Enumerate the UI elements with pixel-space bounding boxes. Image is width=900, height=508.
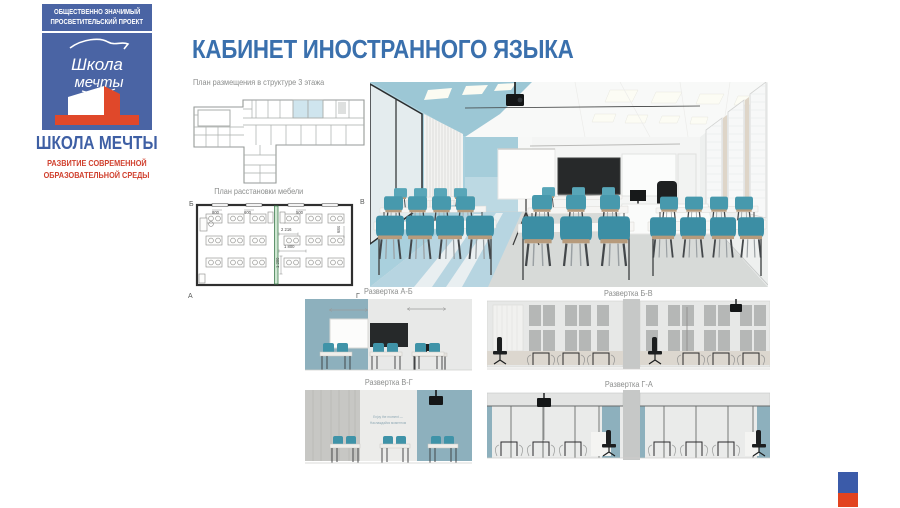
- highlighted-room-1: [293, 100, 308, 118]
- corner-label-tl: Б: [189, 201, 194, 208]
- folding-partition: [275, 206, 279, 284]
- svg-text:800: 800: [212, 210, 220, 215]
- corner-label-tr: В: [360, 199, 365, 206]
- corner-mark-blue: [838, 472, 858, 493]
- scribble-icon: [70, 39, 128, 49]
- page-title: КАБИНЕТ ИНОСТРАННОГО ЯЗЫКА: [192, 34, 636, 65]
- screen: [330, 319, 368, 348]
- logo-tagline: РАЗВИТИЕ СОВРЕМЕННОЙ ОБРАЗОВАТЕЛЬНОЙ СРЕ…: [25, 158, 169, 182]
- elevation-bv-caption: Развертка Б-В: [487, 288, 770, 298]
- logo-banner-line1: ОБЩЕСТВЕННО ЗНАЧИМЫЙ: [54, 8, 140, 17]
- logo-script-line1: Школа: [71, 55, 123, 74]
- building-icon: [55, 86, 139, 125]
- corner-label-bl: А: [188, 293, 193, 300]
- elevation-ga: [487, 390, 770, 468]
- svg-text:Наслаждайся моментом: Наслаждайся моментом: [370, 421, 406, 425]
- svg-text:600: 600: [244, 210, 252, 215]
- logo-name: ШКОЛА МЕЧТЫ: [25, 133, 169, 154]
- svg-text:2 216: 2 216: [281, 227, 292, 232]
- partition-wall: [623, 390, 640, 460]
- logo-banner-line2: ПРОСВЕТИТЕЛЬСКИЙ ПРОЕКТ: [51, 18, 144, 27]
- corner-mark-red: [838, 493, 858, 507]
- svg-text:Enjoy the moment —: Enjoy the moment —: [373, 415, 404, 419]
- right-section: [640, 393, 770, 458]
- svg-text:684: 684: [336, 225, 341, 233]
- svg-text:500: 500: [296, 210, 304, 215]
- structure-plan: [186, 95, 366, 190]
- classroom-render: [370, 82, 768, 287]
- highlighted-room-2: [308, 100, 323, 118]
- corner-mark: [838, 472, 858, 507]
- slide: ОБЩЕСТВЕННО ЗНАЧИМЫЙ ПРОСВЕТИТЕЛЬСКИЙ ПР…: [0, 0, 900, 508]
- left-section: [487, 393, 623, 458]
- logo-badge: Школа мечты: [42, 33, 152, 130]
- logo-badge-art: Школа мечты: [42, 33, 152, 130]
- svg-text:1 200: 1 200: [275, 257, 280, 268]
- elevation-vg: Enjoy the moment — Наслаждайся моментом: [305, 388, 472, 467]
- svg-text:1 800: 1 800: [284, 244, 295, 249]
- logo-banner: ОБЩЕСТВЕННО ЗНАЧИМЫЙ ПРОСВЕТИТЕЛЬСКИЙ ПР…: [42, 4, 152, 31]
- elevation-ab: [305, 297, 472, 374]
- partition-wall: [623, 299, 640, 369]
- elevation-vg-caption: Развертка В-Г: [305, 377, 472, 387]
- elevation-ab-caption: Развертка А-Б: [305, 286, 472, 296]
- structure-plan-caption: План размещения в структуре 3 этажа: [193, 77, 346, 87]
- elevation-ga-caption: Развертка Г-А: [487, 379, 770, 389]
- elevation-bv: [487, 299, 770, 375]
